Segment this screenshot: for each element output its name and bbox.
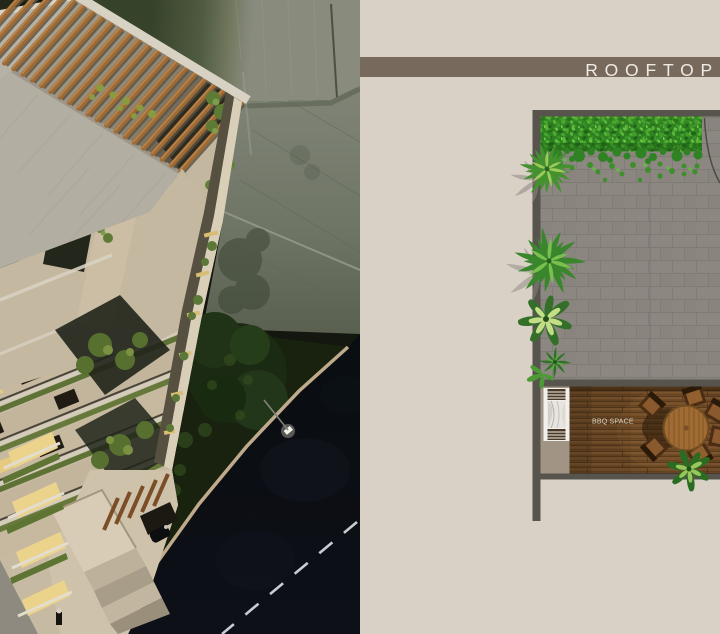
svg-text:ROOFTOP: ROOFTOP: [585, 60, 719, 80]
svg-text:BBQ SPACE: BBQ SPACE: [592, 419, 634, 426]
